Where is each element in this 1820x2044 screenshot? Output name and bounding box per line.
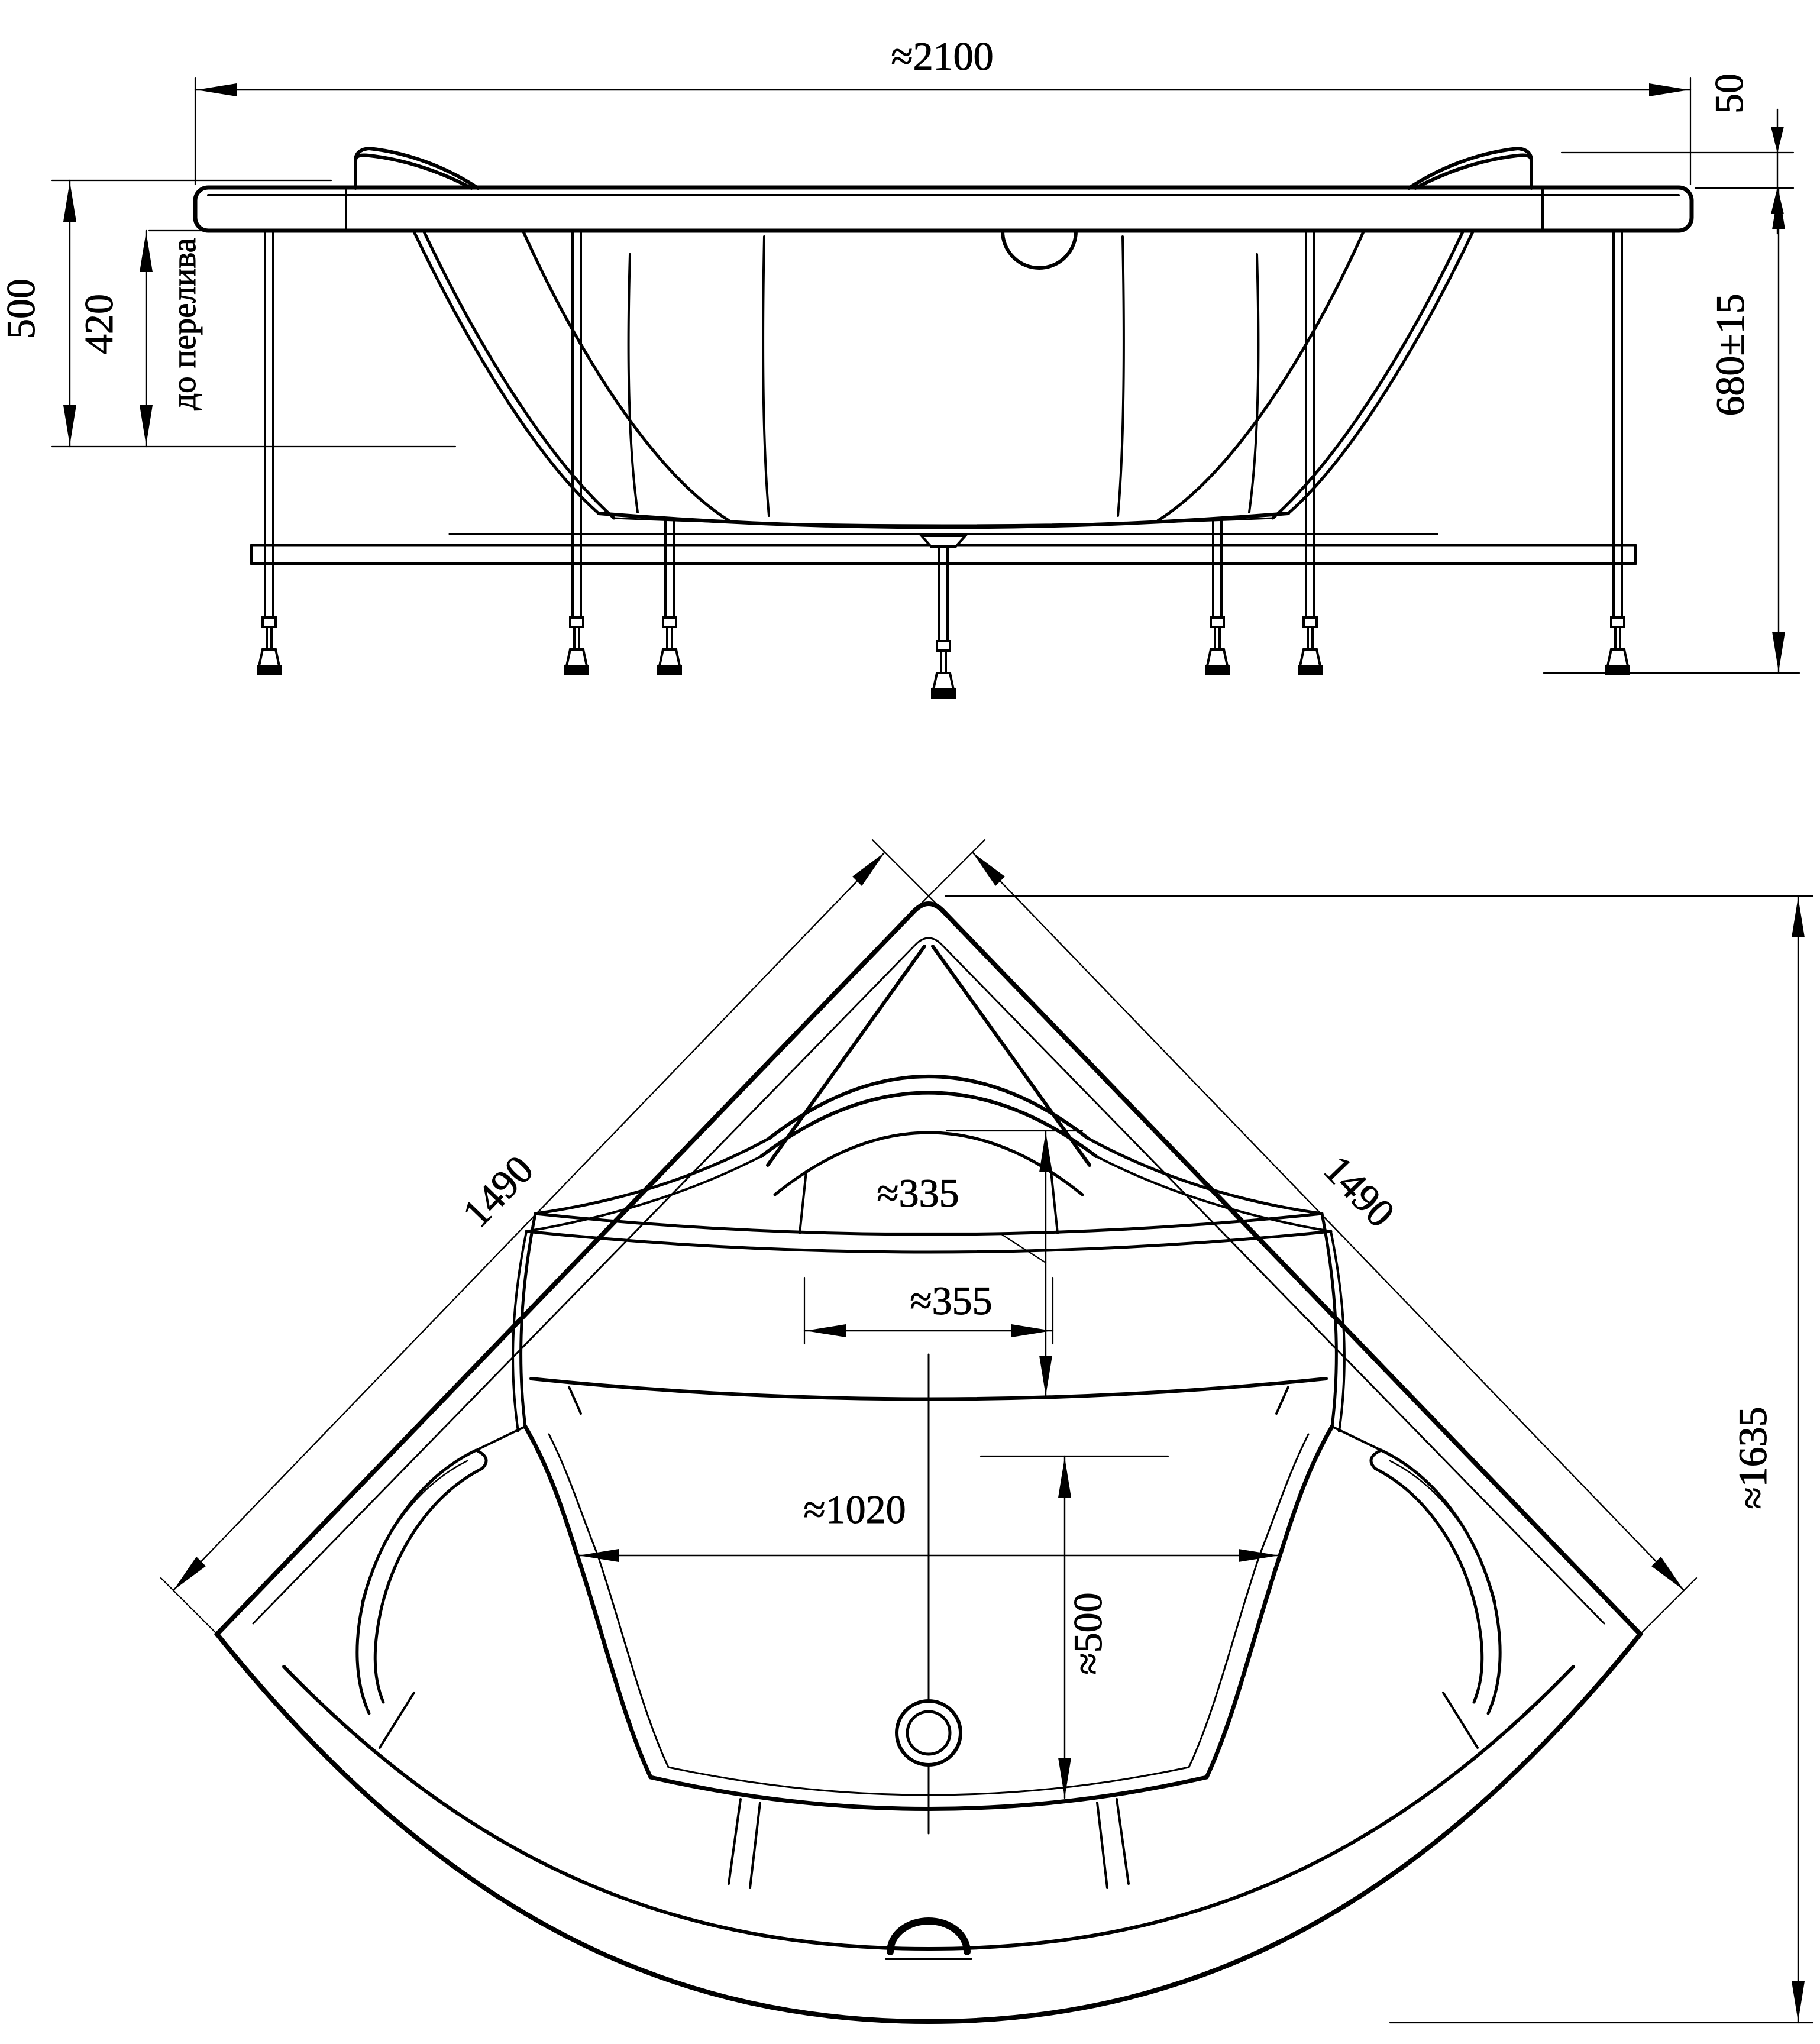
dim-headrest-height-label: 50 bbox=[1706, 73, 1751, 114]
frame-leg bbox=[932, 543, 955, 698]
frame-leg bbox=[565, 232, 588, 674]
bathtub-technical-drawing: ≈2100 50 680±15 500 bbox=[0, 0, 1820, 2044]
headrest-left bbox=[355, 148, 478, 188]
frame-legs bbox=[258, 232, 1629, 698]
frame-leg bbox=[1299, 232, 1321, 674]
dim-overall-width: ≈2100 bbox=[195, 34, 1690, 185]
drain-fitting bbox=[922, 536, 965, 546]
dim-drain-offset-label: ≈500 bbox=[1065, 1592, 1110, 1674]
dim-total-height-label: 680±15 bbox=[1708, 293, 1753, 416]
frame-leg bbox=[1606, 232, 1629, 674]
dim-depth-to-overflow: 420 до перелива bbox=[76, 231, 414, 447]
dim-total-depth-label: ≈1635 bbox=[1730, 1406, 1775, 1509]
overflow-note-label: до перелива bbox=[166, 238, 203, 410]
front-elevation-view: ≈2100 50 680±15 500 bbox=[0, 34, 1799, 698]
dim-overall-width-label: ≈2100 bbox=[891, 34, 993, 79]
dim-headrest-width-label: ≈355 bbox=[910, 1278, 992, 1323]
frame-leg bbox=[1206, 519, 1229, 674]
dim-depth-to-overflow-label: 420 bbox=[76, 294, 121, 354]
dim-bowl-width-label: ≈1020 bbox=[803, 1487, 906, 1532]
bathtub-rim bbox=[195, 187, 1692, 231]
drain bbox=[897, 1701, 961, 1765]
drawing-sheet: ≈2100 50 680±15 500 bbox=[0, 0, 1820, 2044]
frame-leg bbox=[658, 519, 681, 674]
overflow-hole bbox=[1003, 231, 1076, 268]
dim-headrest-depth-label: ≈335 bbox=[877, 1170, 959, 1215]
frame-leg bbox=[258, 232, 280, 674]
dim-total-height: 680±15 bbox=[1544, 189, 1799, 673]
headrest-right bbox=[1409, 148, 1531, 188]
dim-depth-total-label: 500 bbox=[0, 279, 43, 339]
plan-view: 1490 1490 ≈1635 ≈1020 ≈500 bbox=[161, 840, 1813, 2023]
